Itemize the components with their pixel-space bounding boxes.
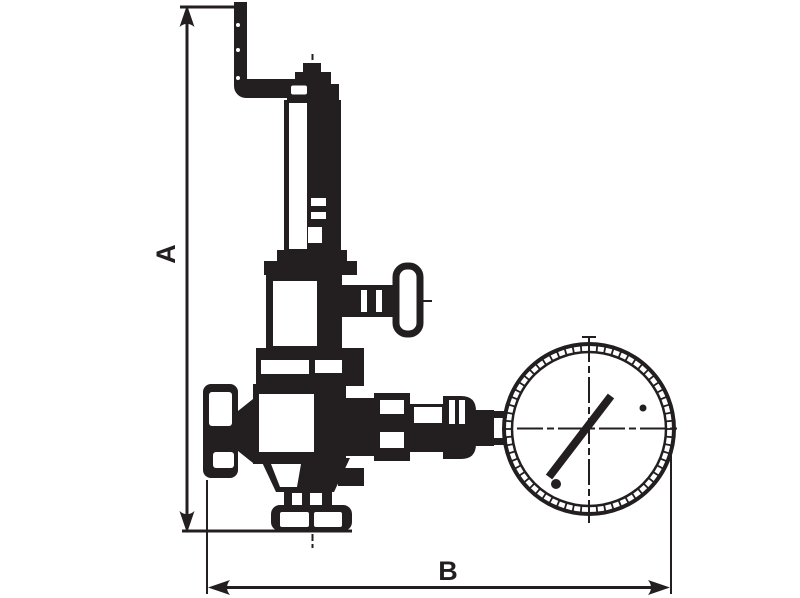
gauge-tick (581, 506, 582, 513)
gauge-tick (666, 437, 674, 438)
gauge-tick (597, 344, 598, 352)
gauge-tick (535, 489, 540, 495)
arrowhead-left-icon (208, 580, 230, 595)
bonnet-flange-upper (277, 250, 347, 262)
upper-body (266, 274, 342, 352)
inlet-neck (238, 399, 253, 463)
spring-detail (311, 212, 326, 219)
spring-detail (311, 198, 326, 206)
bottom-neck-slot (292, 493, 302, 506)
gauge-tick (529, 484, 534, 489)
lower-flange (256, 348, 364, 386)
dimension-b-label: B (438, 556, 458, 586)
flange-slot (315, 360, 342, 373)
spring-detail (308, 227, 322, 243)
spindle-thread (361, 290, 367, 312)
adjusting-t-handle (334, 266, 432, 334)
gauge-tick (649, 375, 655, 380)
lever-pin-hole (236, 23, 240, 27)
test-lever (234, 2, 310, 98)
gauge-tick (504, 437, 512, 438)
gauge-tick (523, 478, 529, 483)
outlet-neck (346, 398, 378, 456)
spindle-thread (376, 290, 382, 312)
outlet-pipe-slot (414, 407, 442, 423)
needle-hub (551, 479, 561, 489)
arrowhead-right-icon (648, 580, 670, 595)
gauge-tick (638, 489, 643, 495)
handle-spindle (342, 285, 396, 317)
gauge-nut-slot (459, 400, 465, 424)
flange-slot (261, 360, 309, 374)
bottom-connection (260, 458, 364, 531)
gauge-needle (549, 396, 611, 477)
lever-pin-hole (236, 76, 240, 80)
bonnet-flange-lower (264, 261, 357, 275)
upper-body-face (273, 281, 317, 346)
bottom-neck-slot (310, 493, 322, 506)
outlet-union (346, 393, 507, 461)
spring-bonnet (264, 100, 357, 275)
lever-pin-hole (236, 48, 240, 52)
gauge-tick (523, 375, 529, 380)
gauge-tick (644, 369, 649, 374)
valve-dimension-drawing: A B (0, 0, 800, 598)
bottom-cap-slot (280, 512, 309, 527)
pressure-gauge (504, 336, 680, 523)
body-face (259, 394, 314, 452)
bonnet-highlight (289, 103, 307, 249)
gauge-tick (644, 484, 649, 489)
inlet-port (203, 384, 253, 478)
lever-arm (234, 2, 310, 98)
gauge-tick (666, 421, 674, 422)
inlet-cap-slot (209, 392, 232, 426)
lever-slot (291, 86, 307, 95)
bottom-cap-slot (314, 512, 342, 527)
gauge-tick (581, 344, 582, 352)
gauge-tick (535, 363, 540, 369)
gauge-tick (649, 478, 655, 483)
inlet-cap-slot (213, 452, 234, 468)
dimension-a-label: A (151, 244, 181, 264)
union-nut-slot (380, 400, 404, 414)
valve-body (253, 384, 346, 464)
gauge-tick (504, 421, 512, 422)
bottom-funnel (260, 458, 350, 492)
drawing-canvas: A B (0, 0, 800, 598)
dial-dot (640, 405, 647, 412)
gauge-nut-slot (449, 400, 455, 424)
union-nut-slot (380, 432, 404, 448)
gauge-tick (597, 506, 598, 513)
gauge-tick (638, 363, 643, 369)
handle-knob (396, 266, 420, 334)
body-step (338, 468, 364, 486)
gauge-tick (529, 369, 534, 374)
